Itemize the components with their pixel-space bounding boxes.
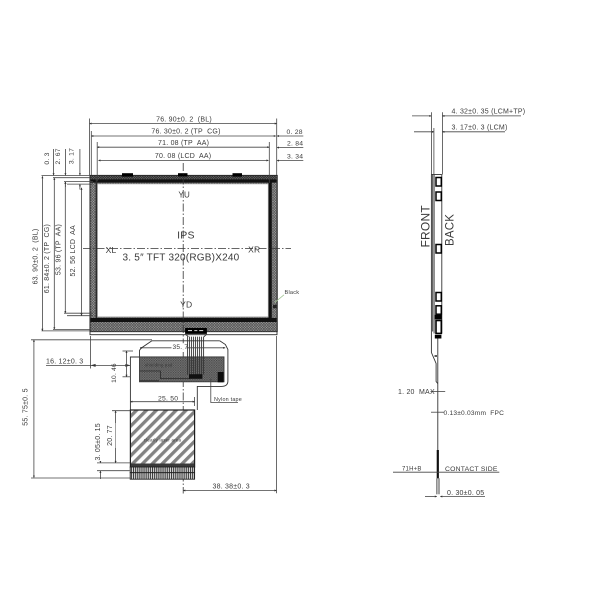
svg-text:16. 12±0. 3: 16. 12±0. 3 (46, 358, 83, 365)
svg-text:BACK: BACK (445, 214, 457, 246)
svg-text:70. 08 (LCD AA): 70. 08 (LCD AA) (155, 153, 211, 160)
svg-text:CONTACT SIDE: CONTACT SIDE (445, 466, 498, 473)
svg-text:2. 84: 2. 84 (287, 140, 303, 147)
svg-text:0. 3: 0. 3 (44, 152, 51, 164)
svg-text:35. 7: 35. 7 (173, 344, 189, 351)
svg-text:76. 90±0. 2 (BL): 76. 90±0. 2 (BL) (156, 116, 212, 123)
svg-text:shielding pad: shielding pad (145, 363, 173, 368)
svg-text:0. 28: 0. 28 (287, 129, 303, 136)
svg-text:71H+B: 71H+B (402, 466, 422, 472)
svg-text:1. 20 MAX: 1. 20 MAX (398, 389, 435, 396)
svg-text:3. 05±0. 15: 3. 05±0. 15 (95, 423, 102, 460)
svg-text:XL: XL (106, 245, 117, 255)
svg-text:2. 67: 2. 67 (55, 148, 62, 164)
svg-text:25. 50: 25. 50 (158, 395, 178, 402)
svg-text:3. 5″ TFT 320(RGB)X240: 3. 5″ TFT 320(RGB)X240 (123, 253, 240, 264)
svg-text:YU: YU (178, 191, 190, 200)
svg-text:76. 30±0. 2 (TP CG): 76. 30±0. 2 (TP CG) (151, 129, 220, 136)
svg-text:3. 34: 3. 34 (287, 153, 303, 160)
svg-text:63. 90±0. 2 (BL): 63. 90±0. 2 (BL) (33, 229, 40, 285)
svg-text:3. 17: 3. 17 (68, 148, 75, 164)
svg-text:Black: Black (285, 290, 300, 296)
svg-text:FRONT: FRONT (419, 205, 433, 248)
svg-text:clearly laser area: clearly laser area (144, 438, 182, 443)
svg-text:20. 77: 20. 77 (107, 425, 114, 446)
svg-text:3. 17±0. 3 (LCM): 3. 17±0. 3 (LCM) (452, 124, 508, 131)
svg-text:52. 56 LCD AA: 52. 56 LCD AA (70, 225, 77, 276)
svg-text:XR: XR (248, 244, 260, 254)
svg-text:4. 32±0. 35 (LCM+TP): 4. 32±0. 35 (LCM+TP) (452, 108, 526, 115)
svg-text:Nylon tape: Nylon tape (214, 397, 242, 403)
svg-text:IPS: IPS (177, 230, 195, 242)
svg-text:10. 46: 10. 46 (111, 363, 118, 383)
svg-text:53. 96 (TP AA): 53. 96 (TP AA) (55, 224, 62, 275)
svg-text:61. 84±0. 2 (TP CG): 61. 84±0. 2 (TP CG) (44, 224, 51, 293)
svg-text:71. 08 (TP AA): 71. 08 (TP AA) (158, 140, 209, 147)
svg-text:55. 75±0. 5: 55. 75±0. 5 (22, 388, 29, 425)
svg-text:0. 30±0. 05: 0. 30±0. 05 (447, 490, 484, 497)
svg-text:YD: YD (180, 300, 192, 310)
svg-text:0.13±0.03mm FPC: 0.13±0.03mm FPC (444, 410, 505, 417)
svg-text:38. 38±0. 3: 38. 38±0. 3 (213, 483, 250, 490)
